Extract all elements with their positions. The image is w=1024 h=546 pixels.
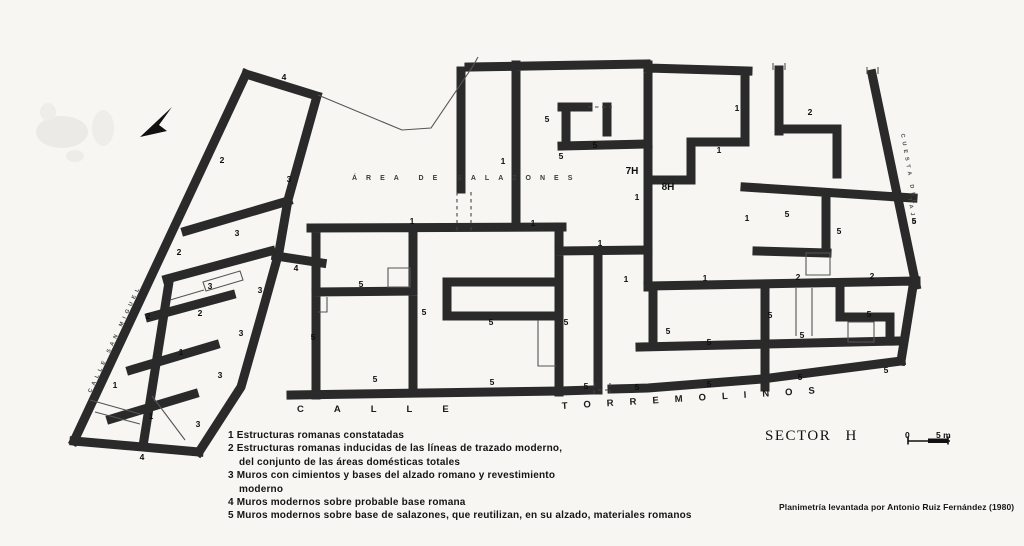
wall-code-label: 3 bbox=[235, 228, 240, 238]
legend-line: 3 Muros con cimientos y bases del alzado… bbox=[228, 469, 692, 482]
wall-code-label: 3 bbox=[258, 285, 263, 295]
wall-code-label: 2 bbox=[796, 272, 801, 282]
wall-code-label: 5 bbox=[837, 226, 842, 236]
wall-code-label: 3 bbox=[239, 328, 244, 338]
wall-code-label: 2 bbox=[808, 107, 813, 117]
attribution: Planimetría levantada por Antonio Ruiz F… bbox=[779, 502, 1014, 512]
wall-code-label: 1 bbox=[735, 103, 740, 113]
wall-code-label: 3 bbox=[287, 174, 292, 184]
sector-title: SECTOR H bbox=[765, 428, 858, 445]
wall-code-label: 3 bbox=[208, 281, 213, 291]
left-street-label: CALLE SAN MIGUEL bbox=[87, 284, 142, 394]
wall-code-label: 3 bbox=[218, 370, 223, 380]
wall-code-label: 5 bbox=[707, 379, 712, 389]
wall-code-label: 2 bbox=[870, 271, 875, 281]
wall-code-label: 5 bbox=[545, 114, 550, 124]
wall-code-label: 4 bbox=[294, 263, 299, 273]
wall-code-label: 5 bbox=[311, 332, 316, 342]
wall-code-label: 1 bbox=[501, 156, 506, 166]
scan-smudges bbox=[36, 103, 114, 162]
wall-code-label: 5 bbox=[884, 365, 889, 375]
wall-code-label: 5 bbox=[422, 307, 427, 317]
wall-code-label: 5 bbox=[867, 309, 872, 319]
scanned-plan-page: CALLE TORREMOLINOS ÁREA DE SALAZONES CAL… bbox=[0, 0, 1024, 546]
wall-code-label: 1 bbox=[149, 411, 154, 421]
wall-code-label: 1 bbox=[531, 218, 536, 228]
wall-code-label: 5 bbox=[912, 216, 917, 226]
wall-code-label: 2 bbox=[146, 311, 151, 321]
wall-code-label: 1 bbox=[703, 273, 708, 283]
wall-code-label: 5 bbox=[584, 381, 589, 391]
wall-code-label: 5 bbox=[635, 382, 640, 392]
area-salazones-label: ÁREA DE SALAZONES bbox=[352, 173, 581, 182]
wall-code-label: 7H bbox=[626, 166, 639, 177]
wall-code-label: 5 bbox=[798, 372, 803, 382]
scale-bar: 0 5 m bbox=[905, 430, 951, 445]
legend-line: 4 Muros modernos sobre probable base rom… bbox=[228, 496, 692, 509]
legend-line: moderno bbox=[228, 483, 692, 496]
wall-code-label: 2 bbox=[177, 247, 182, 257]
wall-code-label: 4 bbox=[140, 452, 145, 462]
legend-line: 1 Estructuras romanas constatadas bbox=[228, 429, 692, 442]
wall-code-label: 8H bbox=[662, 182, 675, 193]
wall-code-label: 5 bbox=[564, 317, 569, 327]
wall-code-label: 1 bbox=[598, 238, 603, 248]
wall-code-label: 5 bbox=[373, 374, 378, 384]
wall-code-label: 2 bbox=[220, 155, 225, 165]
street-label-calle: CALLE bbox=[297, 404, 479, 415]
wall-code-label: 1 bbox=[624, 274, 629, 284]
legend-line: 5 Muros modernos sobre base de salazones… bbox=[228, 509, 692, 522]
wall-code-label: 1 bbox=[745, 213, 750, 223]
north-arrow-icon bbox=[140, 107, 172, 137]
main-complex-walls bbox=[291, 64, 916, 395]
wall-code-label: 5 bbox=[489, 317, 494, 327]
wall-code-label: 5 bbox=[490, 377, 495, 387]
legend-line: del conjunto de las áreas domésticas tot… bbox=[228, 456, 692, 469]
wall-code-label: 5 bbox=[593, 140, 598, 150]
wall-code-label: 1 bbox=[717, 145, 722, 155]
wall-code-label: 1 bbox=[410, 216, 415, 226]
wall-code-label: 5 bbox=[666, 326, 671, 336]
legend: 1 Estructuras romanas constatadas2 Estru… bbox=[228, 429, 692, 523]
wall-code-label: 2 bbox=[198, 308, 203, 318]
legend-line: 2 Estructuras romanas inducidas de las l… bbox=[228, 442, 692, 455]
wall-code-label: 4 bbox=[282, 72, 287, 82]
wall-code-label: 5 bbox=[559, 151, 564, 161]
wall-code-label: 5 bbox=[707, 337, 712, 347]
wall-code-label: 5 bbox=[785, 209, 790, 219]
wall-code-label: 5 bbox=[768, 310, 773, 320]
wall-code-label: 5 bbox=[359, 279, 364, 289]
wall-code-label: 5 bbox=[800, 330, 805, 340]
wall-code-label: 1 bbox=[635, 192, 640, 202]
wall-code-label: 1 bbox=[113, 380, 118, 390]
wall-code-label: 3 bbox=[196, 419, 201, 429]
wall-code-label: 1 bbox=[179, 347, 184, 357]
